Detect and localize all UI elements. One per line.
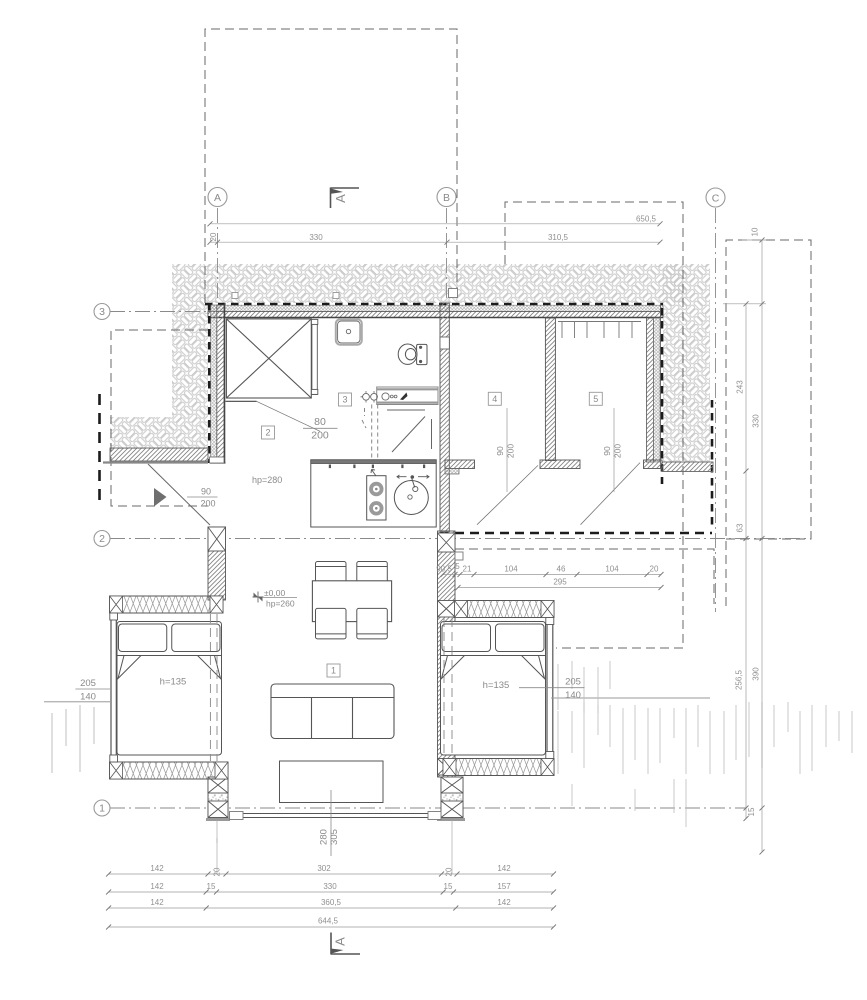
svg-text:90: 90 [201,487,211,497]
svg-text:142: 142 [150,864,164,873]
svg-text:200: 200 [613,444,623,458]
svg-text:4: 4 [492,394,497,404]
svg-text:63: 63 [736,523,745,532]
svg-text:2: 2 [265,428,270,438]
svg-text:B: B [443,192,450,204]
svg-text:142: 142 [497,898,511,907]
svg-text:20: 20 [209,232,218,241]
svg-text:142: 142 [150,882,164,891]
svg-text:15: 15 [444,882,453,891]
svg-text:205: 205 [565,677,581,688]
svg-text:20: 20 [650,565,659,574]
svg-text:650,5: 650,5 [636,215,657,224]
svg-text:243: 243 [736,380,745,394]
svg-text:330: 330 [752,414,761,428]
svg-text:142: 142 [150,898,164,907]
svg-text:15: 15 [207,882,216,891]
svg-text:3: 3 [342,395,347,405]
svg-text:h=135: h=135 [483,680,510,691]
svg-text:90,5: 90,5 [436,565,452,574]
svg-text:104: 104 [504,565,518,574]
svg-text:330: 330 [309,233,323,242]
svg-text:1: 1 [331,666,336,676]
svg-text:±0,00: ±0,00 [264,588,285,598]
svg-text:390: 390 [752,667,761,681]
svg-text:200: 200 [311,430,329,442]
svg-text:10: 10 [751,227,760,236]
svg-text:C: C [712,192,720,204]
svg-text:310,5: 310,5 [548,233,569,242]
svg-text:305: 305 [329,829,340,845]
svg-text:3: 3 [99,306,105,318]
svg-text:15: 15 [747,807,756,816]
svg-text:80: 80 [314,416,326,428]
svg-text:A: A [214,192,221,204]
svg-text:1: 1 [99,803,105,815]
svg-text:hp=280: hp=280 [252,475,282,485]
svg-text:200: 200 [200,499,215,509]
svg-text:A: A [333,937,348,946]
svg-text:205: 205 [80,678,96,689]
svg-text:200: 200 [506,444,516,458]
svg-text:5: 5 [593,394,598,404]
svg-text:104: 104 [605,565,619,574]
svg-text:5: 5 [455,562,460,571]
svg-text:hp=260: hp=260 [266,599,295,609]
svg-text:157: 157 [497,882,511,891]
svg-text:2: 2 [99,533,105,545]
svg-text:644,5: 644,5 [318,917,339,926]
svg-text:140: 140 [80,692,96,703]
svg-text:140: 140 [565,690,581,701]
svg-text:360,5: 360,5 [321,898,342,907]
svg-text:A: A [333,194,348,203]
svg-text:46: 46 [557,565,566,574]
svg-text:256,5: 256,5 [735,669,744,690]
svg-text:295: 295 [553,578,567,587]
svg-text:90: 90 [495,446,505,456]
svg-text:21: 21 [463,565,472,574]
svg-text:h=135: h=135 [160,677,187,688]
svg-text:90: 90 [602,446,612,456]
svg-text:302: 302 [317,864,331,873]
svg-text:330: 330 [323,882,337,891]
svg-text:142: 142 [497,864,511,873]
